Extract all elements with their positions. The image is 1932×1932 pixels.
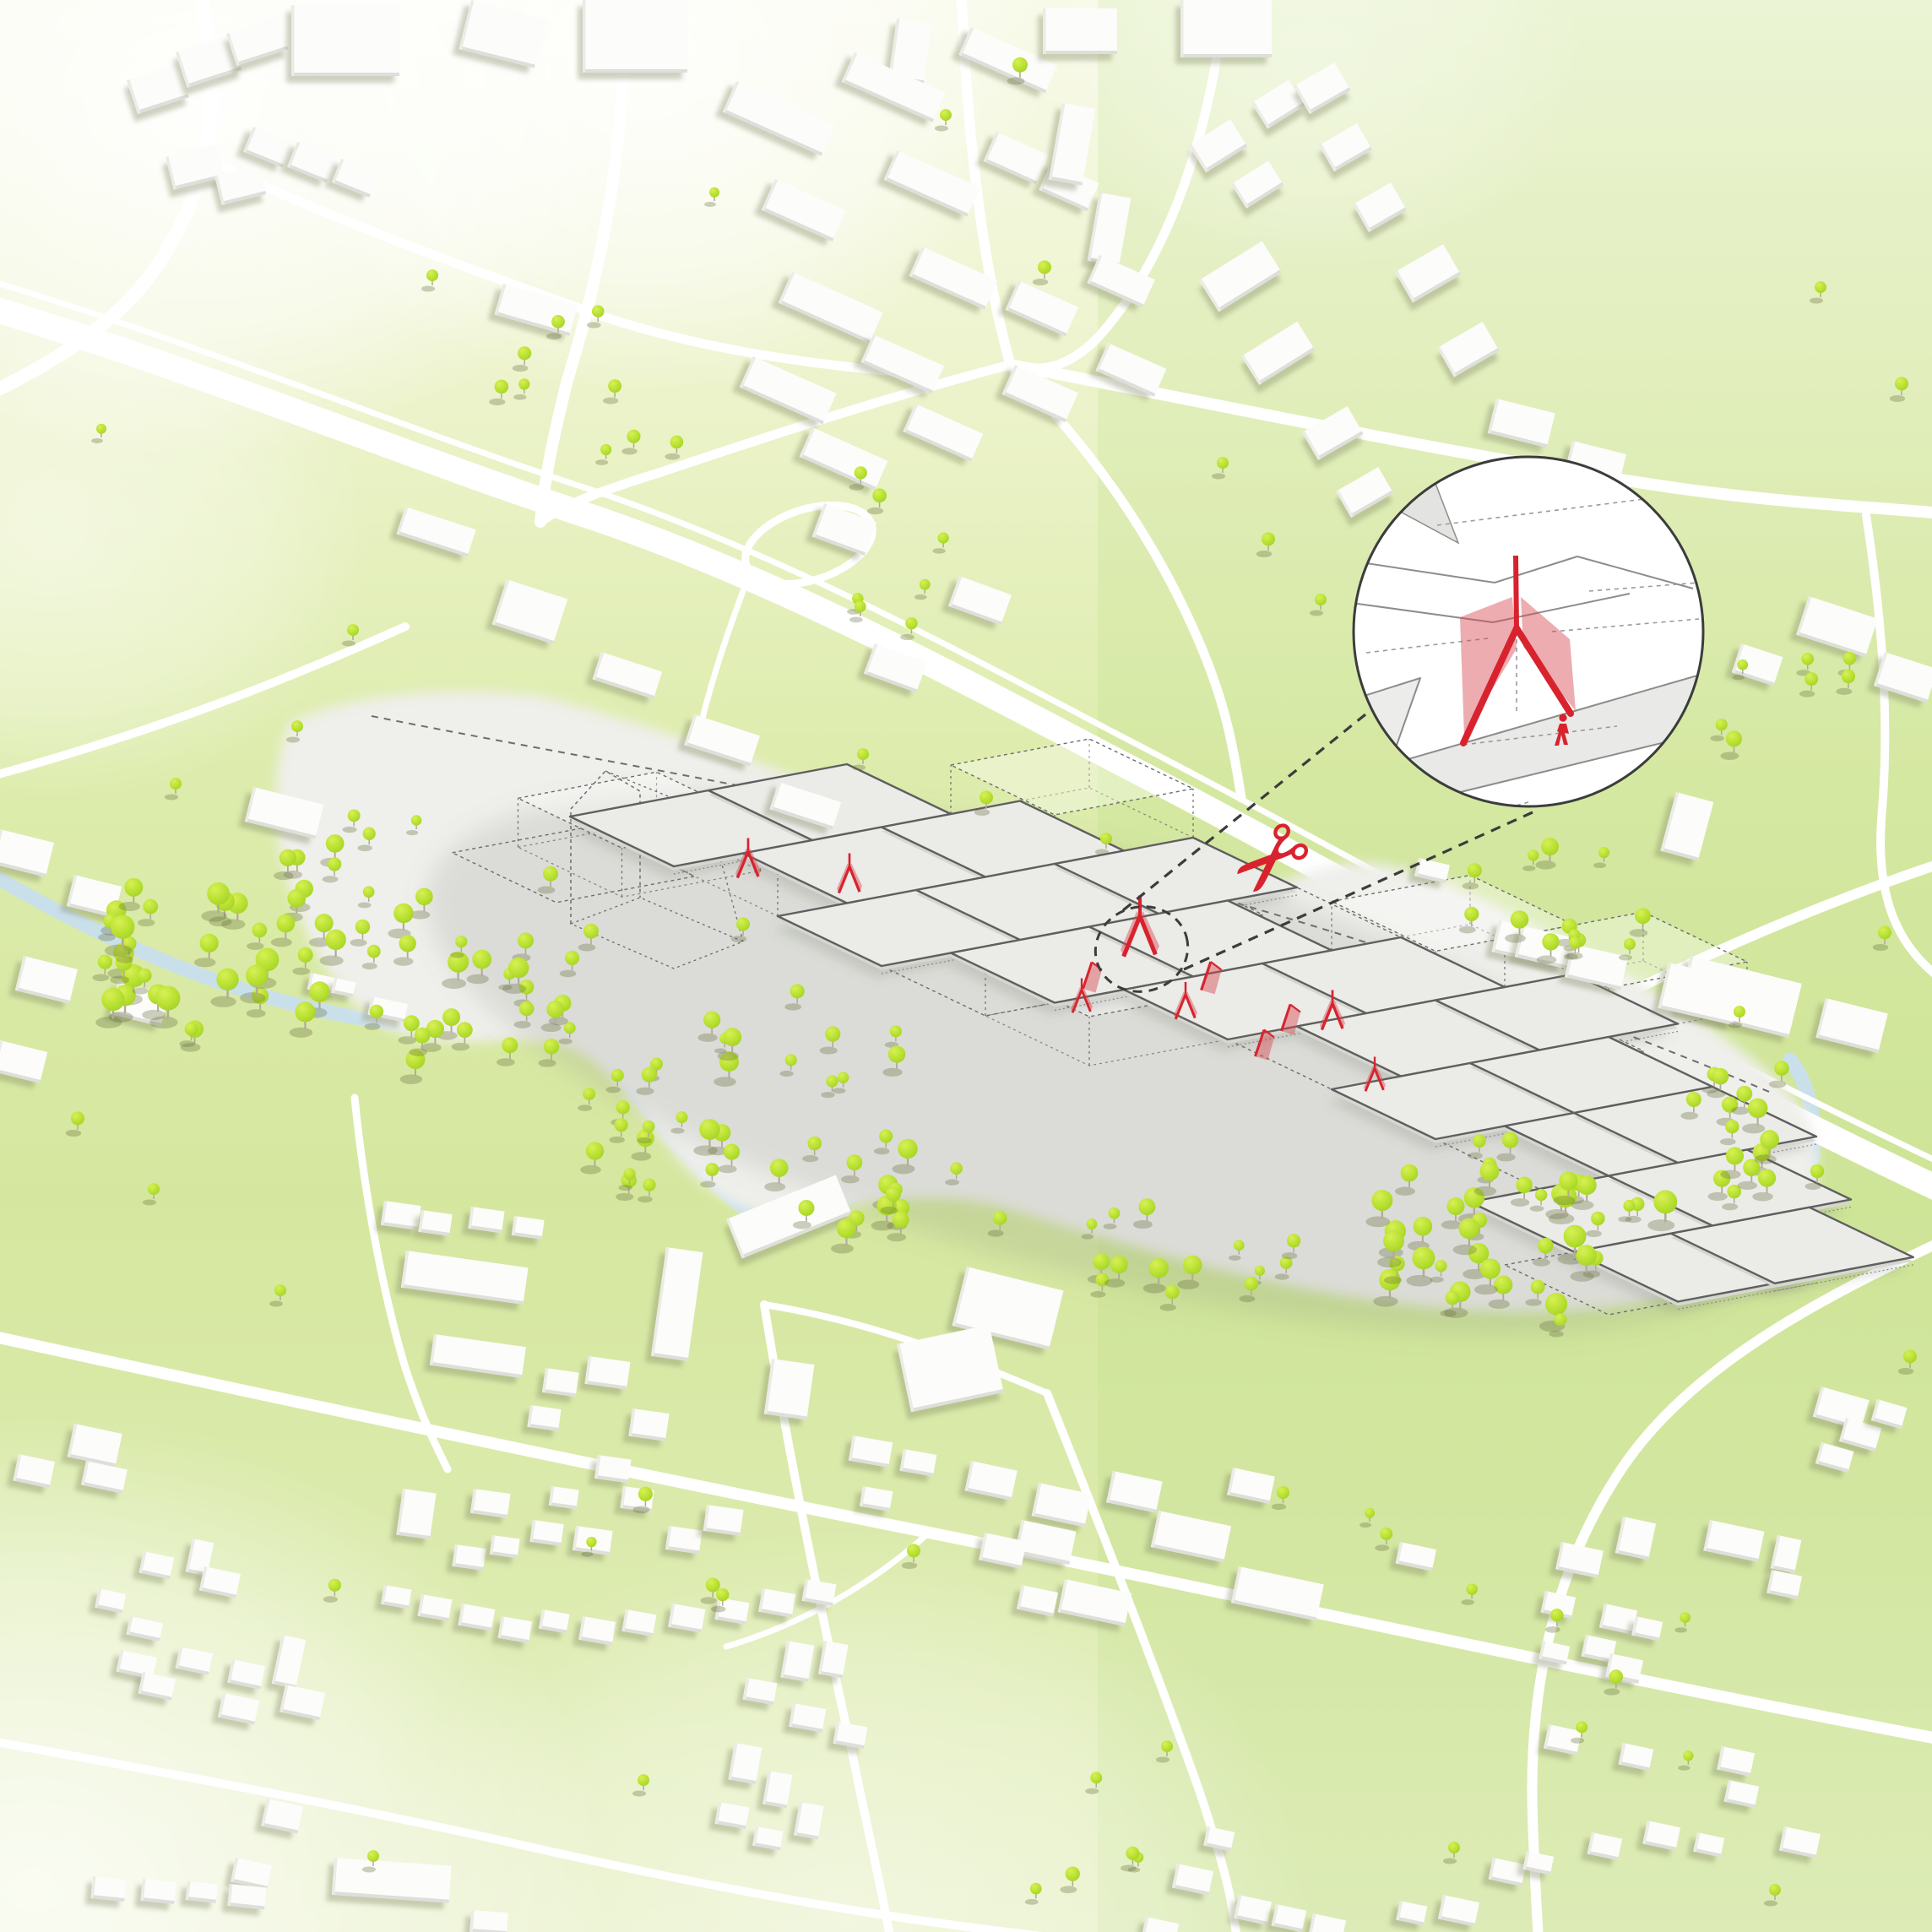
tree-shadow xyxy=(559,1039,573,1045)
tree-crown xyxy=(798,1200,814,1216)
tree-crown xyxy=(415,887,433,905)
person-head xyxy=(1559,714,1566,721)
tree-shadow xyxy=(1630,929,1648,936)
tree-crown xyxy=(1712,1068,1729,1085)
tree-crown xyxy=(723,1028,741,1046)
tree-crown xyxy=(1038,260,1051,274)
tree-crown xyxy=(890,1025,902,1037)
tree-shadow xyxy=(714,1077,736,1087)
tree-shadow xyxy=(833,1088,846,1094)
building-roof xyxy=(583,0,687,73)
building-roof xyxy=(1043,8,1117,54)
tree-crown xyxy=(937,532,948,543)
tree-shadow xyxy=(718,1051,739,1061)
building xyxy=(578,0,687,79)
tree-crown xyxy=(1479,1162,1499,1181)
tree-crown xyxy=(1030,1883,1042,1895)
tree-shadow xyxy=(1406,1275,1432,1286)
tree-crown xyxy=(638,1774,649,1786)
building-roof xyxy=(469,1910,508,1932)
tree-crown xyxy=(291,720,303,732)
building-face-south xyxy=(583,69,687,73)
tree-crown xyxy=(879,1129,893,1142)
tree-shadow xyxy=(1533,1258,1550,1266)
tree-crown xyxy=(736,917,750,931)
tree-crown xyxy=(1725,1120,1739,1133)
tree-shadow xyxy=(1564,953,1578,959)
building xyxy=(1038,8,1117,61)
tree-crown xyxy=(980,790,993,804)
tree-shadow xyxy=(882,1068,902,1077)
tree-shadow xyxy=(1384,1276,1402,1283)
tree-shadow xyxy=(1496,1153,1515,1162)
tree-shadow xyxy=(105,945,133,957)
tree-shadow xyxy=(323,876,339,882)
tree-shadow xyxy=(1082,1234,1094,1239)
tree-crown xyxy=(309,981,330,1002)
tree-shadow xyxy=(887,1233,906,1241)
tree-crown xyxy=(1736,1086,1752,1102)
tree-shadow xyxy=(210,996,236,1007)
tree-shadow xyxy=(149,1016,177,1028)
tree-crown xyxy=(1843,652,1857,665)
tree-crown xyxy=(893,1211,909,1228)
tree-shadow xyxy=(240,992,265,1003)
tree-shadow xyxy=(1890,395,1905,402)
tree-crown xyxy=(1380,1528,1392,1540)
tree-shadow xyxy=(442,978,466,989)
tree-shadow xyxy=(665,453,680,460)
tree-shadow xyxy=(874,1148,890,1154)
tree-shadow xyxy=(143,1200,156,1206)
masterplan-rendering: ✂ xyxy=(0,0,1932,1932)
tree-crown xyxy=(1459,1218,1480,1240)
tree-shadow xyxy=(1769,1081,1786,1088)
tree-shadow xyxy=(852,765,866,771)
tree-crown xyxy=(298,947,313,963)
tree-shadow xyxy=(292,968,310,975)
tree-crown xyxy=(1371,1190,1392,1211)
tree-shadow xyxy=(731,936,746,942)
tree-shadow xyxy=(1805,1183,1821,1190)
tree-crown xyxy=(370,1005,383,1018)
tree-shadow xyxy=(1728,1023,1742,1028)
tree-shadow xyxy=(849,616,863,622)
tree-crown xyxy=(1448,1842,1460,1853)
tree-shadow xyxy=(1441,1220,1462,1229)
tree-crown xyxy=(638,1487,653,1501)
tree-crown xyxy=(1653,1190,1677,1213)
tree-shadow xyxy=(892,1164,914,1175)
tree-crown xyxy=(1716,719,1728,730)
tree-shadow xyxy=(452,1043,470,1050)
tree-crown xyxy=(1804,672,1818,686)
building-face-west xyxy=(291,5,295,76)
tree-shadow xyxy=(1275,1273,1289,1279)
tree-shadow xyxy=(133,987,149,994)
tree-shadow xyxy=(945,1180,959,1186)
tree-crown xyxy=(1262,532,1275,545)
tree-shadow xyxy=(1549,1331,1563,1338)
tree-shadow xyxy=(342,641,355,647)
tree-crown xyxy=(1255,1266,1265,1276)
building-face-south xyxy=(291,73,399,76)
tree-shadow xyxy=(489,399,505,405)
tree-shadow xyxy=(1474,1284,1498,1294)
tree-crown xyxy=(1473,1134,1486,1148)
tree-shadow xyxy=(1373,1296,1397,1307)
tree-shadow xyxy=(1375,1544,1389,1550)
tree-shadow xyxy=(578,944,596,952)
tree-shadow xyxy=(1133,1220,1153,1229)
tree-shadow xyxy=(138,919,155,926)
tree-shadow xyxy=(323,1596,338,1603)
tree-shadow xyxy=(1177,1280,1199,1289)
tree-shadow xyxy=(343,827,357,833)
tree-crown xyxy=(124,878,143,897)
tree-shadow xyxy=(1489,1300,1510,1309)
tree-shadow xyxy=(1007,78,1025,85)
tree-shadow xyxy=(1731,1107,1750,1115)
tree-shadow xyxy=(1593,862,1606,868)
tree-crown xyxy=(287,889,306,908)
tree-crown xyxy=(519,1001,535,1017)
tree-shadow xyxy=(784,1003,801,1011)
tree-shadow xyxy=(393,958,413,966)
tree-shadow xyxy=(450,952,464,958)
tree-shadow xyxy=(514,1021,531,1028)
tree-shadow xyxy=(1461,1599,1473,1605)
tree-crown xyxy=(1538,1238,1553,1253)
tree-crown xyxy=(426,269,438,281)
tree-crown xyxy=(993,1211,1007,1225)
tree-crown xyxy=(1287,1234,1300,1247)
tree-crown xyxy=(1576,1721,1587,1733)
tree-shadow xyxy=(362,1867,376,1873)
tree-shadow xyxy=(1810,298,1823,304)
tree-shadow xyxy=(1722,1203,1738,1210)
tree-shadow xyxy=(841,1175,860,1183)
tree-shadow xyxy=(764,1182,785,1191)
tree-shadow xyxy=(609,1137,624,1143)
tree-crown xyxy=(1554,1313,1566,1326)
tree-shadow xyxy=(902,1562,917,1569)
tree-shadow xyxy=(718,1165,736,1174)
tree-shadow xyxy=(1732,675,1745,680)
tree-crown xyxy=(642,1066,657,1082)
building-face-west xyxy=(583,0,586,73)
tree-crown xyxy=(565,951,579,965)
tree-shadow xyxy=(1229,1255,1241,1260)
tree-crown xyxy=(1545,1293,1567,1315)
tree-crown xyxy=(347,624,359,636)
tree-crown xyxy=(328,1579,341,1592)
tree-shadow xyxy=(1060,1886,1077,1893)
tree-crown xyxy=(940,109,952,121)
tree-shadow xyxy=(1104,1278,1125,1288)
tree-shadow xyxy=(560,970,577,978)
tree-shadow xyxy=(1755,1154,1777,1164)
building xyxy=(326,1858,451,1910)
tree-crown xyxy=(295,1001,315,1022)
tree-shadow xyxy=(1121,1864,1136,1871)
tree-crown xyxy=(325,930,345,950)
tree-shadow xyxy=(603,398,618,404)
tree-crown xyxy=(1564,1225,1587,1248)
tree-shadow xyxy=(541,1023,562,1032)
tree-shadow xyxy=(269,1301,283,1307)
tree-crown xyxy=(1100,833,1112,844)
tree-shadow xyxy=(820,1046,838,1054)
tree-shadow xyxy=(849,484,864,491)
tree-shadow xyxy=(271,938,292,947)
tree-shadow xyxy=(935,126,948,132)
tree-crown xyxy=(1086,1218,1097,1229)
tree-crown xyxy=(1401,1164,1419,1182)
tree-shadow xyxy=(1570,1271,1593,1281)
tree-crown xyxy=(543,866,558,882)
tree-shadow xyxy=(358,902,372,908)
tree-shadow xyxy=(165,795,178,800)
tree-shadow xyxy=(1085,1788,1099,1794)
tree-crown xyxy=(96,424,106,434)
tree-shadow xyxy=(1674,1627,1687,1632)
tree-crown xyxy=(592,305,605,317)
tree-crown xyxy=(1110,1256,1128,1273)
tree-crown xyxy=(855,600,866,612)
tree-crown xyxy=(1559,1171,1577,1190)
tree-crown xyxy=(1569,936,1582,949)
tree-shadow xyxy=(1212,474,1225,480)
tree-shadow xyxy=(91,438,103,443)
tree-crown xyxy=(857,748,869,760)
tree-shadow xyxy=(409,1048,427,1056)
tree-shadow xyxy=(274,871,293,880)
building xyxy=(1175,0,1272,64)
tree-shadow xyxy=(1033,279,1048,285)
tree-crown xyxy=(1383,1230,1404,1251)
tree-crown xyxy=(1769,1884,1781,1896)
tree-shadow xyxy=(638,1196,653,1202)
tree-crown xyxy=(1528,849,1539,860)
tree-shadow xyxy=(932,548,945,554)
tree-crown xyxy=(920,579,931,590)
building-roof xyxy=(291,5,399,76)
tree-crown xyxy=(502,1037,518,1053)
tree-crown xyxy=(148,1183,160,1195)
tree-crown xyxy=(907,1544,920,1557)
tree-shadow xyxy=(670,1128,684,1134)
tree-shadow xyxy=(1104,1224,1117,1229)
tree-crown xyxy=(315,914,334,932)
tree-shadow xyxy=(1619,955,1632,961)
tree-crown xyxy=(825,1026,840,1041)
tree-crown xyxy=(1012,57,1028,73)
tree-shadow xyxy=(711,1606,726,1613)
tree-shadow xyxy=(1678,1766,1690,1771)
tree-shadow xyxy=(66,1130,81,1137)
tree-crown xyxy=(1464,907,1479,921)
tree-shadow xyxy=(700,1597,717,1604)
tree-crown xyxy=(1446,1291,1460,1305)
tree-crown xyxy=(855,466,867,479)
tree-crown xyxy=(411,815,421,825)
tree-shadow xyxy=(1453,1245,1478,1255)
tree-crown xyxy=(279,849,296,866)
tree-shadow xyxy=(1511,1198,1529,1207)
tree-shadow xyxy=(802,1155,818,1162)
tree-shadow xyxy=(1586,1230,1602,1237)
tree-shadow xyxy=(98,934,116,942)
tree-crown xyxy=(1480,1258,1501,1278)
tree-shadow xyxy=(365,1023,381,1030)
tree-shadow xyxy=(633,1506,650,1514)
tree-crown xyxy=(404,1015,420,1031)
tree-shadow xyxy=(1604,1688,1620,1695)
tree-shadow xyxy=(286,737,300,743)
tree-shadow xyxy=(580,1165,601,1175)
tree-shadow xyxy=(581,1551,593,1556)
tree-shadow xyxy=(914,594,927,600)
tree-shadow xyxy=(1707,1089,1725,1098)
tree-crown xyxy=(495,380,509,394)
tree-crown xyxy=(1609,1669,1623,1683)
tree-crown xyxy=(1414,1217,1433,1236)
tree-crown xyxy=(1760,1130,1779,1149)
tree-crown xyxy=(586,1537,596,1547)
tree-crown xyxy=(326,834,345,853)
tree-crown xyxy=(1737,659,1748,670)
tree-crown xyxy=(138,969,152,983)
tree-crown xyxy=(1466,1583,1477,1594)
tree-shadow xyxy=(1443,1859,1457,1864)
tree-crown xyxy=(1623,1200,1635,1212)
tree-crown xyxy=(1550,1609,1563,1621)
tree-crown xyxy=(1183,1256,1202,1275)
tree-shadow xyxy=(1474,1186,1496,1197)
tree-shadow xyxy=(638,1137,652,1143)
tree-shadow xyxy=(632,1791,646,1797)
tree-crown xyxy=(399,935,416,952)
tree-shadow xyxy=(538,1059,556,1066)
tree-shadow xyxy=(406,830,418,835)
tree-shadow xyxy=(1752,1192,1772,1202)
tree-crown xyxy=(1624,938,1636,950)
tree-shadow xyxy=(587,322,601,328)
tree-shadow xyxy=(1530,1206,1544,1212)
tree-shadow xyxy=(320,956,344,966)
tree-shadow xyxy=(631,1152,651,1160)
tree-shadow xyxy=(578,1104,592,1110)
tree-crown xyxy=(1734,1006,1745,1018)
tree-shadow xyxy=(1738,1181,1757,1190)
tree-shadow xyxy=(988,1229,1004,1236)
tree-shadow xyxy=(92,974,109,981)
building xyxy=(286,5,399,83)
tree-crown xyxy=(886,1186,901,1202)
tree-crown xyxy=(826,1075,838,1087)
tree-shadow xyxy=(900,634,914,640)
tree-crown xyxy=(1511,910,1529,929)
tree-crown xyxy=(643,1121,655,1133)
tree-crown xyxy=(1245,1277,1258,1290)
tree-shadow xyxy=(1440,1310,1456,1316)
tree-shadow xyxy=(1764,1901,1777,1907)
tree-crown xyxy=(1903,1349,1917,1363)
building xyxy=(758,1358,815,1426)
tree-crown xyxy=(1591,1212,1604,1225)
tree-crown xyxy=(1680,1612,1690,1623)
tree-shadow xyxy=(1459,926,1476,934)
tree-crown xyxy=(888,1045,905,1062)
tree-crown xyxy=(544,1039,559,1054)
building-face-west xyxy=(1180,0,1184,57)
tree-shadow xyxy=(1799,691,1815,697)
tree-crown xyxy=(1468,863,1482,877)
tree-crown xyxy=(457,1022,473,1038)
tree-shadow xyxy=(871,1221,894,1231)
tree-shadow xyxy=(1537,956,1556,964)
tree-crown xyxy=(216,969,238,990)
tree-crown xyxy=(415,1028,431,1044)
tree-crown xyxy=(1726,1147,1744,1164)
tree-crown xyxy=(1138,1198,1155,1215)
tree-crown xyxy=(98,954,112,969)
tree-crown xyxy=(1234,1240,1245,1251)
tree-crown xyxy=(455,936,467,947)
tree-crown xyxy=(703,1011,720,1028)
tree-shadow xyxy=(1310,611,1323,616)
tree-crown xyxy=(518,346,531,360)
tree-crown xyxy=(716,1588,729,1601)
tree-shadow xyxy=(1272,1504,1286,1511)
tree-crown xyxy=(1895,377,1908,390)
tree-shadow xyxy=(1377,1257,1402,1267)
tree-shadow xyxy=(1571,1738,1584,1744)
tree-crown xyxy=(699,1119,720,1140)
tree-crown xyxy=(1126,1847,1139,1860)
tree-crown xyxy=(546,1001,564,1018)
tree-shadow xyxy=(538,887,556,894)
tree-shadow xyxy=(595,459,608,465)
tree-shadow xyxy=(110,975,129,984)
tree-shadow xyxy=(1359,1522,1371,1528)
tree-shadow xyxy=(398,1036,416,1044)
tree-crown xyxy=(1815,281,1826,293)
tree-crown xyxy=(355,920,370,934)
tree-crown xyxy=(185,1022,198,1035)
tree-shadow xyxy=(1535,860,1555,869)
tree-crown xyxy=(155,985,180,1010)
tree-shadow xyxy=(502,984,526,994)
tree-shadow xyxy=(881,1207,898,1214)
tree-crown xyxy=(363,886,375,898)
tree-crown xyxy=(363,828,376,840)
building-face-south xyxy=(1043,51,1117,54)
tree-shadow xyxy=(247,942,263,950)
tree-shadow xyxy=(831,1244,854,1254)
tree-crown xyxy=(1577,1175,1597,1195)
tree-shadow xyxy=(1522,866,1535,871)
tree-shadow xyxy=(1365,1217,1390,1228)
tree-shadow xyxy=(362,963,377,969)
tree-crown xyxy=(706,1578,720,1593)
tree-shadow xyxy=(1468,1153,1483,1159)
tree-shadow xyxy=(1090,1291,1105,1298)
tree-shadow xyxy=(350,939,366,947)
tree-shadow xyxy=(780,1071,794,1077)
tree-crown xyxy=(1365,1508,1375,1518)
